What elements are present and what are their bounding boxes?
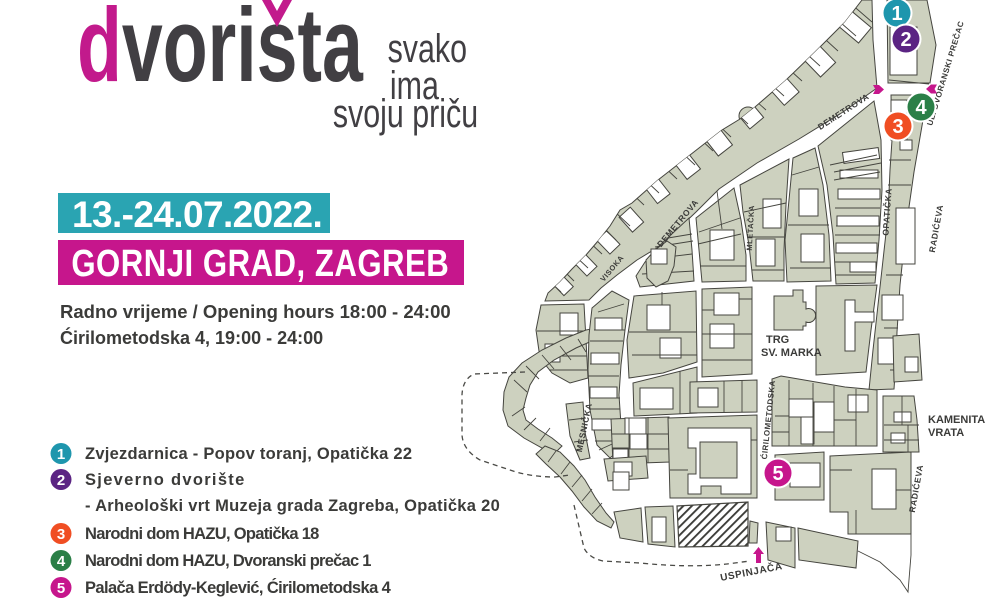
svg-text:5: 5	[772, 463, 783, 485]
svg-text:SV. MARKA: SV. MARKA	[761, 347, 822, 359]
svg-text:Sjeverno dvorište: Sjeverno dvorište	[85, 471, 246, 489]
svg-text:5: 5	[57, 580, 65, 597]
svg-text:USPINJAČA: USPINJAČA	[719, 559, 784, 584]
svg-text:Palača Erdödy-Keglević, Ćirilo: Palača Erdödy-Keglević, Ćirilometodska 4	[85, 578, 392, 597]
svg-text:1: 1	[57, 446, 65, 463]
svg-text:svoju priču: svoju priču	[333, 91, 478, 136]
svg-text:13.-24.07.2022.: 13.-24.07.2022.	[72, 194, 322, 235]
svg-text:Zvjezdarnica - Popov toranj, O: Zvjezdarnica - Popov toranj, Opatička 22	[85, 445, 412, 463]
svg-text:Ćirilometodska 4, 19:00 - 24:0: Ćirilometodska 4, 19:00 - 24:00	[60, 327, 323, 348]
svg-text:3: 3	[892, 116, 903, 138]
svg-text:RADIĆEVA: RADIĆEVA	[926, 204, 945, 254]
svg-text:Narodni dom HAZU, Opatička 18: Narodni dom HAZU, Opatička 18	[85, 525, 319, 543]
svg-text:Radno vrijeme / Opening hours: Radno vrijeme / Opening hours 18:00 - 24…	[60, 301, 451, 322]
svg-text:VRATA: VRATA	[928, 427, 964, 439]
svg-text:- Arheološki vrt Muzeja grada: - Arheološki vrt Muzeja grada Zagreba, O…	[85, 497, 500, 515]
svg-text:2: 2	[57, 472, 65, 489]
svg-text:KAMENITA: KAMENITA	[928, 414, 985, 426]
svg-text:4: 4	[915, 97, 927, 119]
svg-text:3: 3	[57, 526, 65, 543]
svg-text:dvorista: dvorista	[77, 0, 363, 104]
svg-text:GORNJI GRAD, ZAGREB: GORNJI GRAD, ZAGREB	[71, 243, 449, 285]
svg-text:1: 1	[891, 3, 902, 25]
svg-text:Narodni dom HAZU, Dvoranski pr: Narodni dom HAZU, Dvoranski prečac 1	[85, 552, 371, 570]
svg-text:TRG: TRG	[766, 334, 789, 346]
svg-text:2: 2	[900, 29, 911, 51]
svg-text:4: 4	[57, 553, 66, 570]
